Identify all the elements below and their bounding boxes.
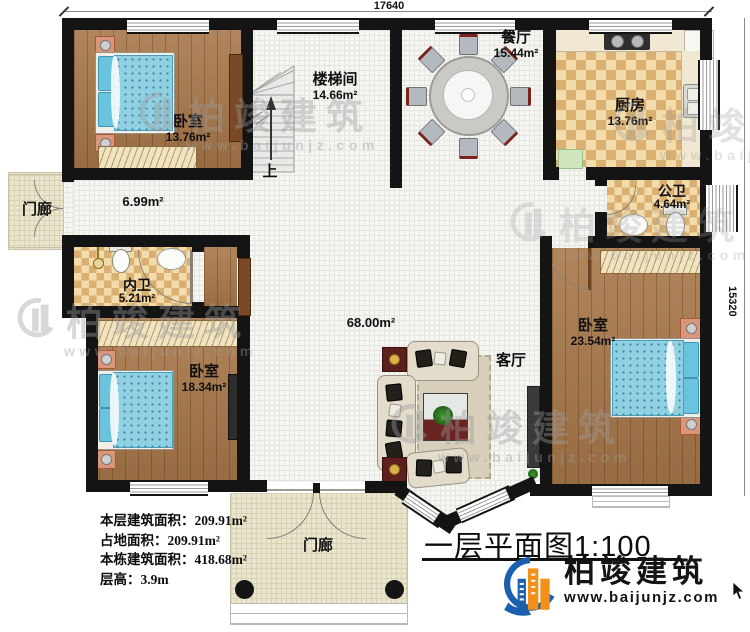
room-label-corridor: 6.99m² bbox=[110, 195, 176, 209]
nightstand bbox=[96, 450, 116, 469]
front-porch-steps bbox=[230, 603, 408, 625]
floor-plan-canvas: 上 bbox=[0, 0, 750, 632]
wall-bedroom2-east-b bbox=[237, 314, 250, 480]
exterior-patch bbox=[62, 318, 86, 492]
wall-innerbath-south bbox=[62, 306, 250, 318]
dimension-line-right bbox=[744, 18, 745, 496]
dining-chair bbox=[459, 34, 478, 55]
wardrobe bbox=[600, 250, 702, 274]
brand-name: 柏竣建筑 bbox=[564, 556, 719, 589]
cushion bbox=[415, 349, 433, 368]
area-stats: 本层建筑面积：209.91m² 占地面积：209.91m² 本栋建筑面积：418… bbox=[100, 511, 247, 589]
sofa-top bbox=[407, 341, 479, 381]
hanging-fixture bbox=[93, 258, 104, 269]
wall-left-lower bbox=[86, 318, 98, 492]
cushion bbox=[385, 383, 403, 402]
room-label-left-porch: 门廊 bbox=[12, 202, 62, 219]
wall-stairwell-east bbox=[390, 30, 402, 188]
cushion bbox=[388, 403, 402, 418]
wall-kitchen-south-b bbox=[586, 167, 712, 180]
door-leaf-bedroom1 bbox=[229, 54, 243, 142]
cushion bbox=[385, 419, 402, 437]
kitchen-mat bbox=[558, 149, 583, 169]
side-table bbox=[382, 457, 407, 482]
wardrobe bbox=[92, 320, 239, 347]
window bbox=[277, 18, 359, 34]
nightstand bbox=[96, 350, 116, 369]
mouse-cursor bbox=[732, 582, 746, 601]
dimension-right-label: 15320 bbox=[722, 266, 738, 336]
wall-innerbath-east-b bbox=[192, 302, 204, 312]
wall-publicbath-west-b bbox=[595, 212, 607, 236]
cushion bbox=[449, 349, 468, 369]
window bbox=[704, 185, 738, 232]
wall-kitchen-south-a bbox=[543, 167, 559, 180]
toilet-bowl bbox=[666, 212, 685, 239]
room-label-bedroom1: 卧室13.76m² bbox=[148, 114, 228, 144]
stat-line: 本栋建筑面积：418.68m² bbox=[100, 550, 247, 570]
brand-website: www.baijunjz.com bbox=[564, 589, 719, 606]
mattress bbox=[113, 372, 173, 448]
brand-logo: 柏竣建筑 www.baijunjz.com bbox=[500, 556, 719, 618]
window bbox=[130, 480, 208, 496]
bath-sink bbox=[619, 214, 648, 236]
room-label-bedroom2: 卧室18.34m² bbox=[166, 364, 242, 394]
wardrobe bbox=[98, 146, 197, 169]
burner bbox=[631, 35, 644, 48]
cushion bbox=[432, 459, 446, 474]
wall-bedroom1-south bbox=[62, 168, 253, 180]
window bbox=[589, 18, 672, 34]
wall-innerbath-east-a bbox=[192, 243, 204, 252]
bedroom2-entry-nook-floor bbox=[204, 247, 237, 312]
dining-table-hub bbox=[461, 88, 475, 102]
dining-chair bbox=[459, 138, 478, 159]
room-label-dining: 餐厅15.44m² bbox=[478, 30, 554, 60]
stat-line: 占地面积：209.91m² bbox=[100, 531, 247, 551]
wall-bedroom3-north-b bbox=[588, 236, 712, 248]
cushion bbox=[416, 459, 433, 477]
cushion bbox=[446, 456, 462, 473]
nightstand bbox=[680, 318, 702, 339]
pillow bbox=[682, 342, 699, 378]
room-label-front-porch: 门廊 bbox=[292, 538, 344, 555]
dining-chair bbox=[406, 87, 427, 106]
stairs-up-label: 上 bbox=[258, 163, 282, 181]
watermark-logo-icon bbox=[12, 296, 58, 342]
cushion bbox=[433, 351, 446, 365]
brand-logo-icon bbox=[500, 556, 558, 618]
sofa-chair bbox=[405, 447, 470, 489]
room-label-hall-area: 68.00m² bbox=[334, 316, 408, 330]
room-label-living: 客厅 bbox=[486, 353, 536, 370]
room-label-kitchen: 厨房13.76m² bbox=[592, 98, 668, 128]
room-label-inner-bath: 内卫5.21m² bbox=[106, 278, 168, 306]
entry-door-post bbox=[313, 483, 320, 493]
pillow bbox=[682, 378, 699, 414]
door-leaf-bedroom2 bbox=[238, 258, 251, 316]
wall-bedroom3-west bbox=[540, 248, 552, 484]
dimension-top-label: 17640 bbox=[354, 0, 424, 12]
stat-line: 层高：3.9m bbox=[100, 570, 247, 590]
dining-chair bbox=[510, 87, 531, 106]
side-table bbox=[382, 347, 407, 372]
wall-bedroom3-north-a bbox=[540, 236, 552, 248]
stat-line: 本层建筑面积：209.91m² bbox=[100, 511, 247, 531]
porch-column bbox=[385, 580, 404, 599]
exterior-steps bbox=[592, 496, 670, 508]
wall-bedroom2-east-a bbox=[237, 247, 250, 258]
wall-corridor-south bbox=[62, 235, 250, 247]
room-label-public-bath: 公卫4.64m² bbox=[640, 184, 704, 212]
door-leaf-inner-bath bbox=[190, 250, 193, 304]
plant bbox=[433, 406, 453, 425]
wall-left-upper bbox=[62, 30, 74, 182]
window bbox=[127, 18, 209, 34]
window bbox=[698, 60, 720, 130]
room-label-bedroom3: 卧室23.54m² bbox=[554, 318, 632, 348]
room-label-stairwell: 楼梯间14.66m² bbox=[295, 72, 375, 102]
wall-publicbath-west-a bbox=[595, 180, 607, 186]
burner bbox=[611, 35, 624, 48]
tv-cabinet bbox=[527, 386, 540, 468]
toilet-bowl bbox=[112, 249, 130, 273]
